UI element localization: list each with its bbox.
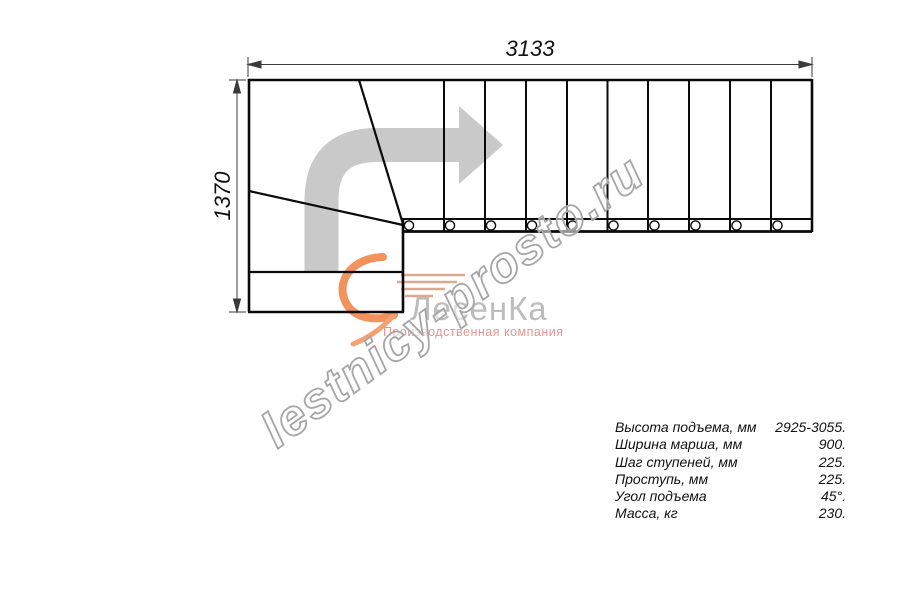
spec-row-step-pitch: Шаг ступеней, мм 225.: [615, 454, 846, 471]
spec-value: 230.: [819, 505, 846, 522]
direction-arrow-icon: [322, 106, 504, 271]
spec-label: Проступь, мм: [615, 471, 708, 488]
spec-row-mass: Масса, кг 230.: [615, 505, 846, 522]
spec-row-angle: Угол подъема 45°.: [615, 488, 846, 505]
baluster-circles: [404, 221, 782, 230]
spec-value: 225.: [819, 471, 846, 488]
spec-label: Высота подъема, мм: [615, 419, 757, 436]
spec-row-flight-width: Ширина марша, мм 900.: [615, 436, 846, 453]
spec-value: 900.: [819, 436, 846, 453]
blueprint-canvas: ЛесенКа Производственная компания: [0, 0, 900, 600]
spec-value: 225.: [819, 454, 846, 471]
spec-row-tread: Проступь, мм 225.: [615, 471, 846, 488]
tread-lines: [444, 80, 771, 231]
spec-label: Ширина марша, мм: [615, 436, 742, 453]
spec-label: Шаг ступеней, мм: [615, 454, 738, 471]
spec-table: Высота подъема, мм 2925-3055. Ширина мар…: [615, 419, 846, 523]
spec-value: 2925-3055.: [775, 419, 846, 436]
spec-label: Угол подъема: [615, 488, 707, 505]
spec-row-height: Высота подъема, мм 2925-3055.: [615, 419, 846, 436]
spec-value: 45°.: [821, 488, 846, 505]
spec-label: Масса, кг: [615, 505, 678, 522]
